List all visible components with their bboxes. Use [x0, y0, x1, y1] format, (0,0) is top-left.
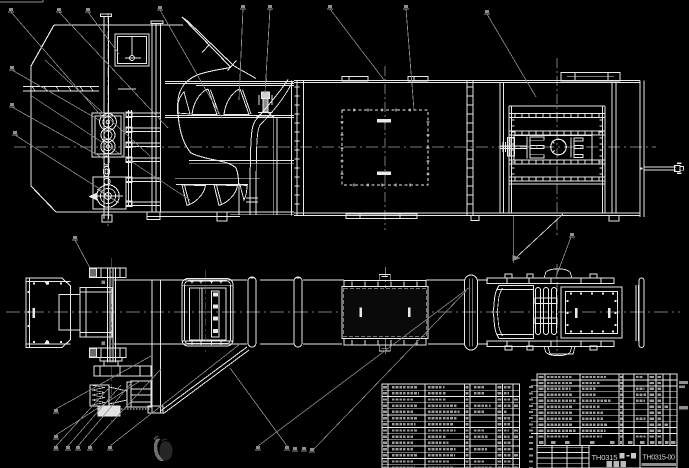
svg-text:TH0315-00: TH0315-00: [643, 453, 676, 462]
svg-text:TH0315: TH0315: [592, 453, 618, 462]
